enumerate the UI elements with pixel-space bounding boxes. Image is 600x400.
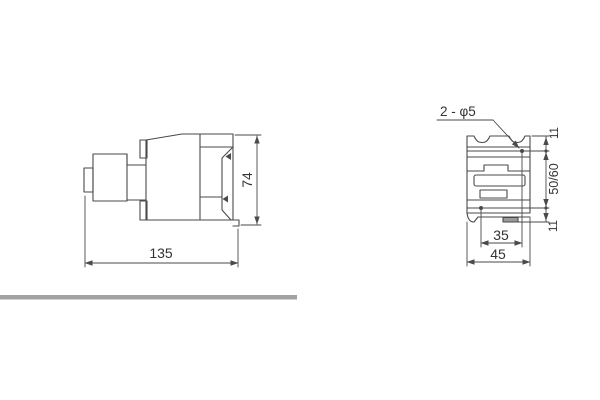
- side-view-neck: [127, 154, 146, 201]
- side-view-end-block: [84, 168, 93, 192]
- side-view-foot: [233, 220, 239, 226]
- dim-label-74: 74: [239, 172, 255, 188]
- dim-right-extension-lines: [518, 136, 549, 222]
- front-view: [467, 136, 549, 222]
- dim-label-11-top: 11: [549, 127, 561, 139]
- dim-label-45: 45: [490, 246, 506, 262]
- front-view-face-lines: [467, 147, 530, 200]
- hole-callout-label: 2 - φ5: [440, 104, 476, 119]
- divider-bar: [0, 295, 297, 300]
- side-view: [84, 134, 239, 226]
- dim-label-50-60: 50/60: [547, 163, 561, 194]
- dim-label-35: 35: [493, 227, 509, 243]
- front-view-nameplate-window: [474, 175, 525, 186]
- dim-label-135: 135: [149, 245, 173, 261]
- dim-label-11-bottom: 11: [548, 220, 560, 232]
- side-view-clip-mark-mid: [223, 196, 229, 203]
- front-view-label-rect: [480, 190, 507, 198]
- mounting-hole-top: [520, 149, 524, 153]
- callout-leader-line: [493, 120, 519, 148]
- front-view-bottom-profile: [467, 213, 530, 222]
- mounting-hole-bottom: [479, 206, 483, 210]
- front-view-step-band: [467, 165, 530, 171]
- dim-right-node-bottom: [544, 206, 547, 209]
- dim-right-node-top: [544, 149, 547, 152]
- technical-drawing-canvas: 135 74: [0, 0, 600, 400]
- front-view-dimensions: [437, 120, 549, 266]
- page: 135 74: [0, 0, 600, 400]
- side-view-mid-block: [93, 154, 127, 201]
- front-view-din-clip-tab: [503, 218, 518, 223]
